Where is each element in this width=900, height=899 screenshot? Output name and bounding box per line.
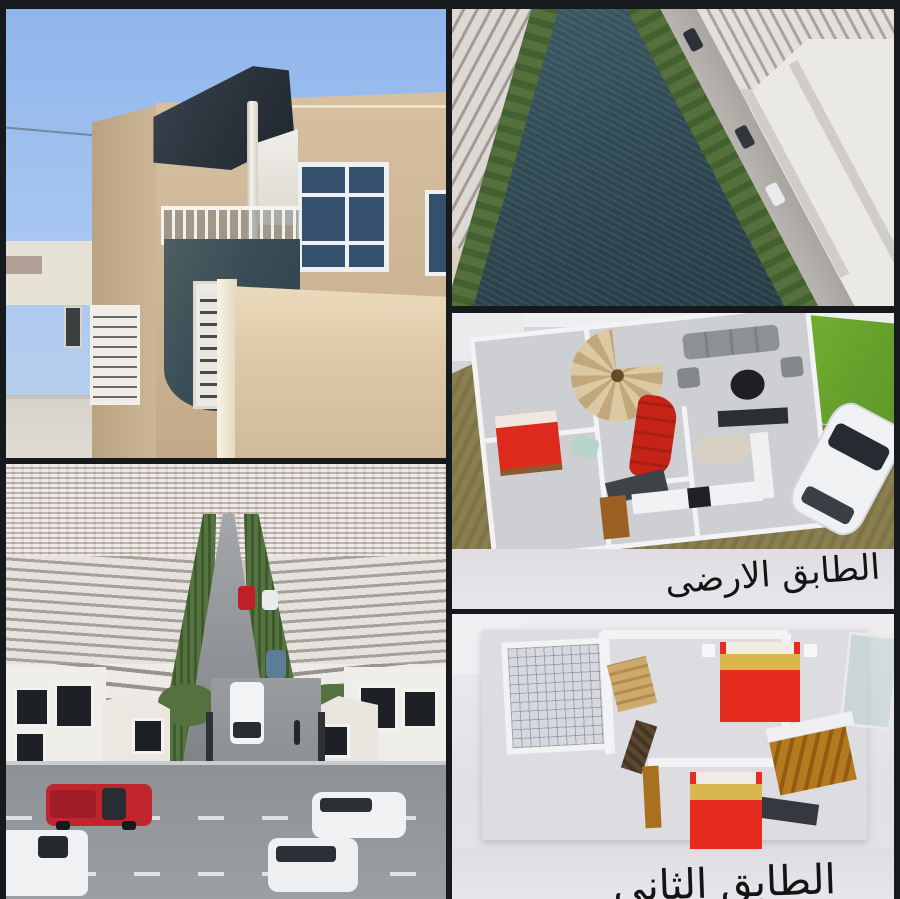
truck-cab (102, 788, 126, 820)
canal-render-panel (452, 9, 894, 306)
pillow (494, 410, 557, 428)
white-van (230, 682, 264, 744)
ground-floor-caption: الطابق الارضى (664, 548, 882, 603)
white-suv-2 (268, 838, 358, 892)
white-suv (312, 792, 406, 838)
gray-sofa (682, 324, 780, 360)
wood-door (642, 766, 661, 829)
wood-cabinet (600, 495, 630, 539)
caption-band: الطابق الثانى (452, 849, 894, 899)
blue-car (266, 650, 286, 678)
pedestrian (294, 720, 300, 745)
distant-rooftop (6, 256, 42, 274)
house-left-wing (92, 105, 158, 458)
nightstand (804, 644, 817, 657)
wheel (122, 821, 136, 830)
blanket (690, 784, 762, 800)
villa-photo-panel (6, 9, 446, 458)
pillow (696, 772, 756, 784)
blanket (720, 654, 800, 670)
truck-bed (50, 790, 96, 818)
armchair (677, 367, 701, 389)
windshield (826, 421, 891, 472)
red-car (238, 586, 255, 610)
wall-corner-post (217, 279, 237, 458)
white-pickup-truck (6, 830, 88, 896)
stair-pole (610, 369, 624, 383)
inner-wall (602, 630, 788, 639)
window (402, 689, 438, 729)
bed-frame (500, 463, 562, 475)
window (132, 718, 164, 754)
red-bed-master (720, 642, 800, 722)
car (682, 27, 704, 53)
pillow (726, 642, 794, 654)
second-floor-plan-panel: الطابق الثانى (452, 614, 894, 899)
tiled-terrace-room (501, 637, 611, 754)
entrance-road (211, 678, 321, 770)
curb-line (6, 761, 446, 765)
upper-window-right (425, 190, 446, 276)
street-render-panel (6, 464, 446, 899)
window (54, 683, 94, 729)
red-bed-second (690, 772, 762, 852)
window-mullion (302, 241, 384, 245)
caption-band: الطابق الارضى (452, 549, 894, 609)
wheel (56, 821, 70, 830)
truck-window (38, 836, 68, 858)
inner-wall (682, 407, 701, 536)
car (764, 182, 786, 208)
round-coffee-table (729, 368, 766, 401)
floor-plan-body (469, 313, 833, 562)
parapet-highlight (292, 105, 446, 108)
floor-patch (612, 325, 662, 370)
suv-glass (320, 798, 372, 812)
foreground-house-left-2 (102, 692, 170, 770)
red-bed (494, 410, 562, 476)
window-mullion (302, 193, 384, 197)
armchair (780, 356, 804, 378)
dining-table (694, 432, 753, 468)
window (14, 687, 50, 727)
window-mullion (345, 167, 349, 267)
second-floor-caption: الطابق الثانى (612, 855, 837, 899)
white-car (262, 590, 278, 610)
tv-unit (718, 407, 789, 427)
nightstand (702, 644, 715, 657)
cooktop (687, 486, 711, 508)
upper-window (297, 162, 389, 272)
ground-floor-plan-panel: الطابق الارضى (452, 313, 894, 609)
car (734, 124, 756, 150)
suv-glass (276, 846, 336, 862)
white-gate (90, 305, 140, 405)
photo-collage: الطابق الارضى (0, 0, 900, 899)
small-dark-window (64, 306, 82, 348)
red-pickup-truck (46, 784, 152, 826)
compound-wall (235, 281, 446, 458)
foreground-house-left (6, 667, 106, 769)
windshield (233, 722, 261, 738)
